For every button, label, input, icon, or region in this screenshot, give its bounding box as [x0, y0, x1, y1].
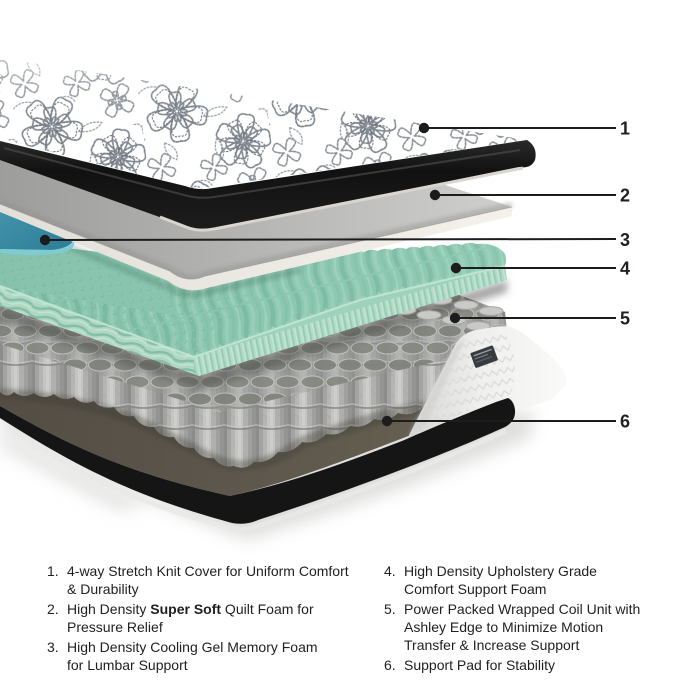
svg-text:3: 3 [620, 230, 630, 250]
svg-text:4: 4 [620, 259, 630, 279]
svg-text:1: 1 [620, 119, 630, 139]
svg-text:6: 6 [620, 412, 630, 432]
svg-text:2: 2 [620, 186, 630, 206]
svg-text:5: 5 [620, 309, 630, 329]
